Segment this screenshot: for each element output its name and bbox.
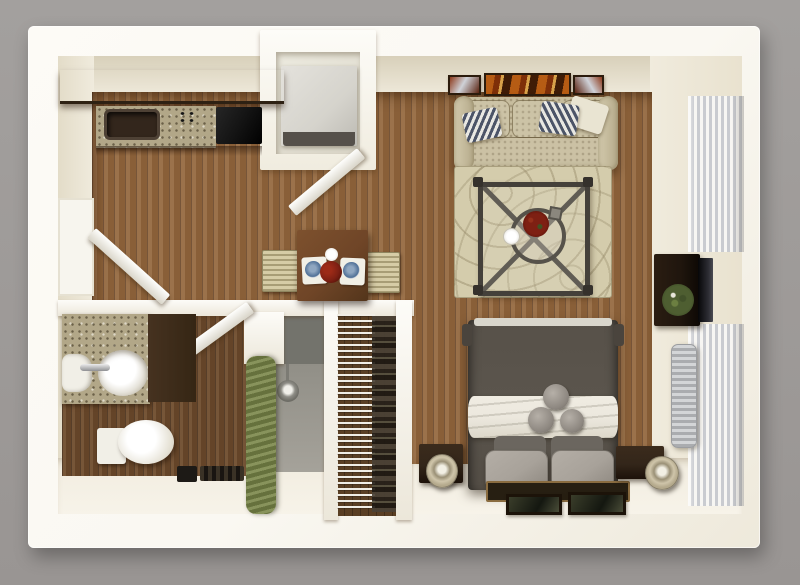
lamp-right (645, 456, 679, 490)
table-corner (473, 177, 483, 187)
floor-mat (200, 466, 244, 481)
closet-wall-right (396, 300, 412, 520)
flower-centerpiece (320, 261, 342, 283)
shower-curtain (246, 356, 276, 514)
kitchen-sink (104, 109, 160, 140)
white-cup (325, 248, 338, 261)
hanging-clothes (372, 316, 396, 512)
floor-plan-render (0, 0, 800, 585)
closet-wall-left (324, 300, 338, 520)
plate-right (343, 262, 360, 279)
vanity-tray (62, 354, 92, 392)
picture-frame-right (568, 492, 626, 515)
sofa-seat (460, 137, 612, 167)
bed-top-sheet (474, 318, 612, 326)
bathroom-scale (177, 466, 197, 482)
upper-cabinets (60, 70, 284, 104)
vanity-cabinet (148, 314, 196, 402)
table-corner (583, 285, 593, 295)
plant (662, 284, 694, 316)
round-accent-pillow (560, 409, 584, 433)
bed-frame-corner (614, 324, 624, 346)
wall-art-right (573, 75, 604, 95)
table-corner (583, 177, 593, 187)
appliance-base (283, 132, 355, 146)
wall-art-left (448, 75, 481, 95)
throw-pillow-striped-right (538, 101, 580, 137)
stove-knobs (178, 110, 196, 123)
round-accent-pillow (528, 407, 554, 433)
dining-chair-right (366, 252, 400, 293)
radiator (671, 344, 697, 448)
shower-head (277, 380, 299, 402)
flower-bowl (523, 211, 549, 237)
wall-art-center (484, 73, 571, 96)
bed-frame-corner (462, 324, 472, 346)
table-corner (473, 285, 483, 295)
television (698, 258, 713, 322)
picture-frame-left (506, 494, 562, 515)
white-plate (503, 228, 520, 245)
counter-shadow (96, 146, 262, 156)
lamp-left (426, 454, 458, 488)
wire-shelving (337, 314, 375, 512)
bathroom-sink (98, 350, 148, 396)
stove (216, 107, 262, 144)
dining-chair-left (262, 250, 299, 292)
vertical-blinds-top (688, 96, 744, 252)
coaster (548, 206, 563, 221)
round-accent-pillow (543, 384, 569, 410)
faucet (80, 364, 110, 371)
toilet-bowl (118, 420, 174, 464)
entry-door-opening (58, 198, 94, 296)
